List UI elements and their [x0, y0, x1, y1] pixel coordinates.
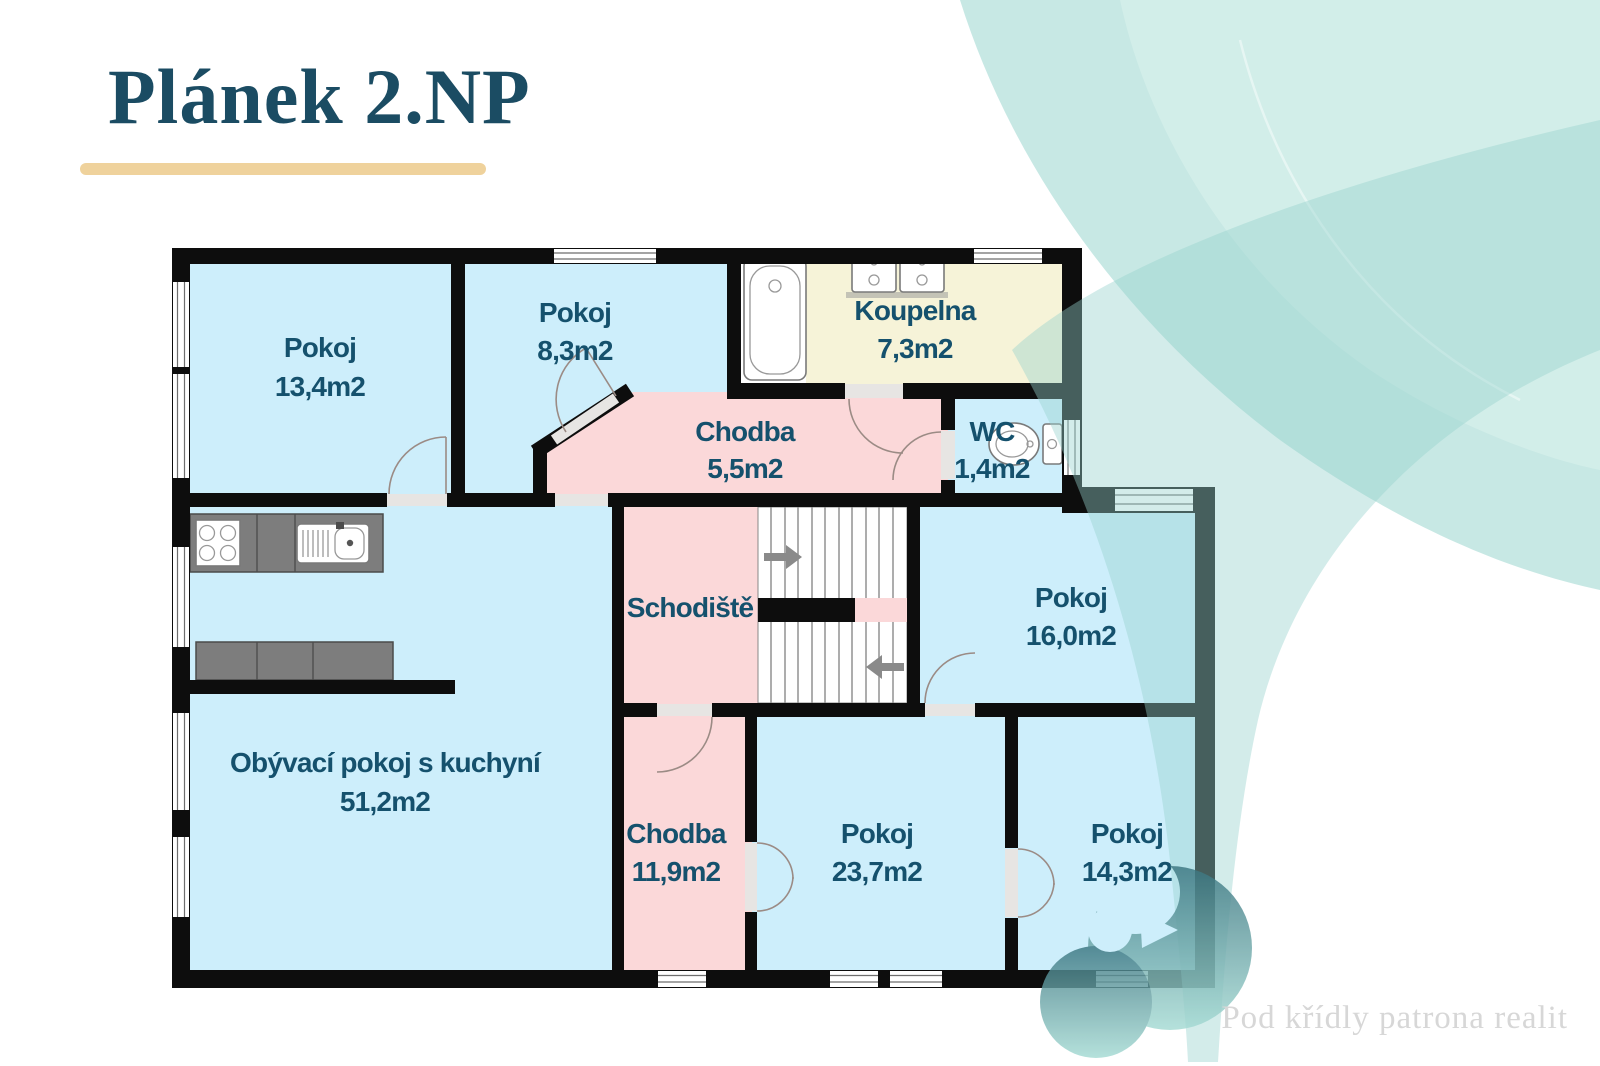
room-area: 1,4m2 [954, 453, 1030, 484]
room-area: 13,4m2 [275, 371, 365, 402]
door-opening [925, 704, 975, 716]
room-label: WC [969, 416, 1015, 447]
stove-icon [196, 520, 240, 566]
door-opening [1005, 849, 1018, 917]
door-opening [657, 704, 712, 716]
window [173, 547, 189, 647]
room-label: Chodba [626, 818, 727, 849]
door-opening [941, 431, 955, 479]
stair-landing-divider [758, 598, 855, 622]
window [658, 971, 706, 987]
title-underline [80, 163, 486, 175]
window [173, 713, 189, 810]
room-label: Schodiště [627, 592, 754, 623]
room-label: Koupelna [854, 295, 976, 326]
floor-plan-canvas: Pokoj 13,4m2 Pokoj 8,3m2 Koupelna 7,3m2 … [0, 0, 1600, 1066]
room-area: 51,2m2 [340, 786, 430, 817]
window [554, 249, 656, 263]
kitchen-sink-icon [297, 522, 369, 563]
room-label: Pokoj [841, 818, 913, 849]
room-area: 8,3m2 [537, 335, 613, 366]
room-area: 11,9m2 [632, 856, 721, 887]
window [974, 249, 1042, 263]
window [173, 837, 189, 917]
door-opening [555, 494, 608, 506]
door-opening [387, 494, 447, 506]
window [173, 282, 189, 478]
kitchen-island [196, 642, 393, 680]
stair-mid-landing [855, 598, 907, 622]
room-label: Pokoj [284, 332, 356, 363]
slide: Pokoj 13,4m2 Pokoj 8,3m2 Koupelna 7,3m2 … [0, 0, 1600, 1066]
room-label: Pokoj [539, 297, 611, 328]
brand-footer-text: Pod křídly patrona realit [968, 1000, 1568, 1037]
staircase [758, 507, 907, 703]
room-area: 16,0m2 [1026, 620, 1116, 651]
room-area: 7,3m2 [877, 333, 953, 364]
door-opening [745, 843, 757, 911]
room-label: Obývací pokoj s kuchyní [230, 747, 542, 778]
bathtub-icon [744, 258, 806, 380]
room-label: Pokoj [1035, 582, 1107, 613]
room-area: 23,7m2 [832, 856, 922, 887]
room-area: 5,5m2 [707, 453, 783, 484]
room-label: Chodba [695, 416, 796, 447]
window [830, 971, 878, 987]
door-opening [845, 384, 903, 398]
page-title: Plánek 2.NP [108, 52, 531, 142]
room-label: Pokoj [1091, 818, 1163, 849]
window [890, 971, 942, 987]
